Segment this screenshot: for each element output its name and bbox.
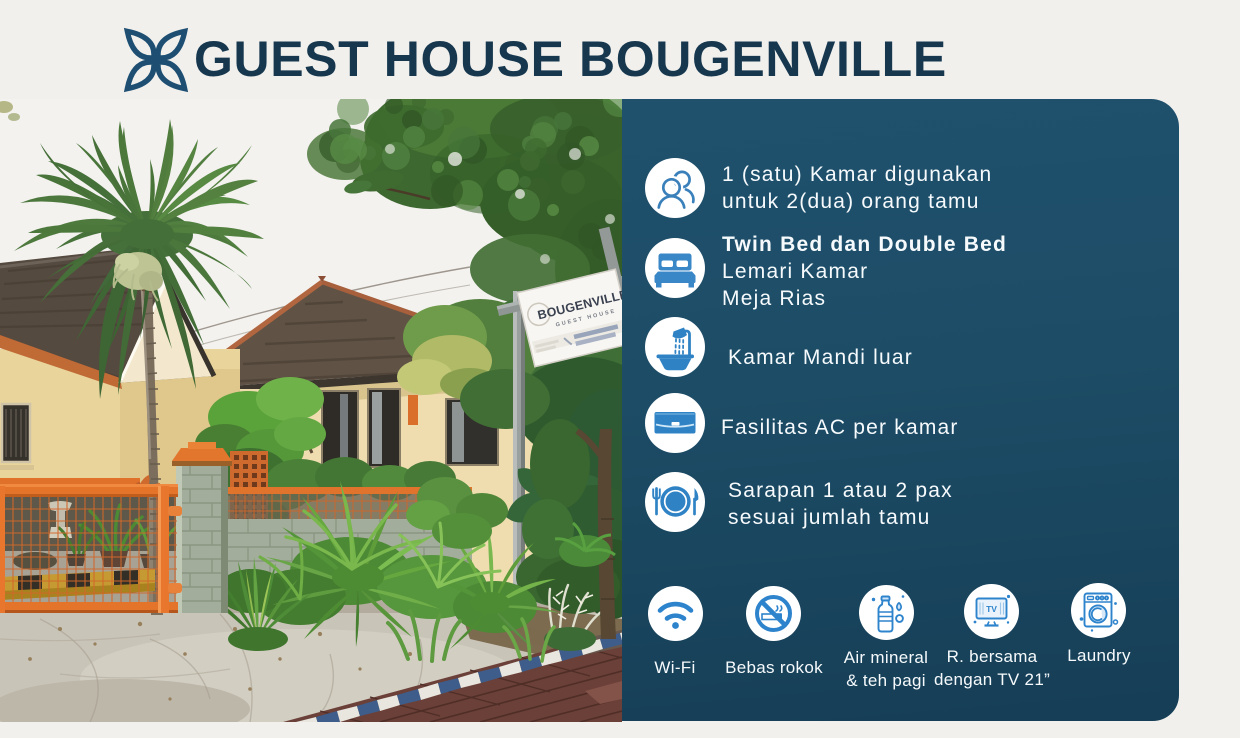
svg-text:TV: TV [986,604,997,614]
